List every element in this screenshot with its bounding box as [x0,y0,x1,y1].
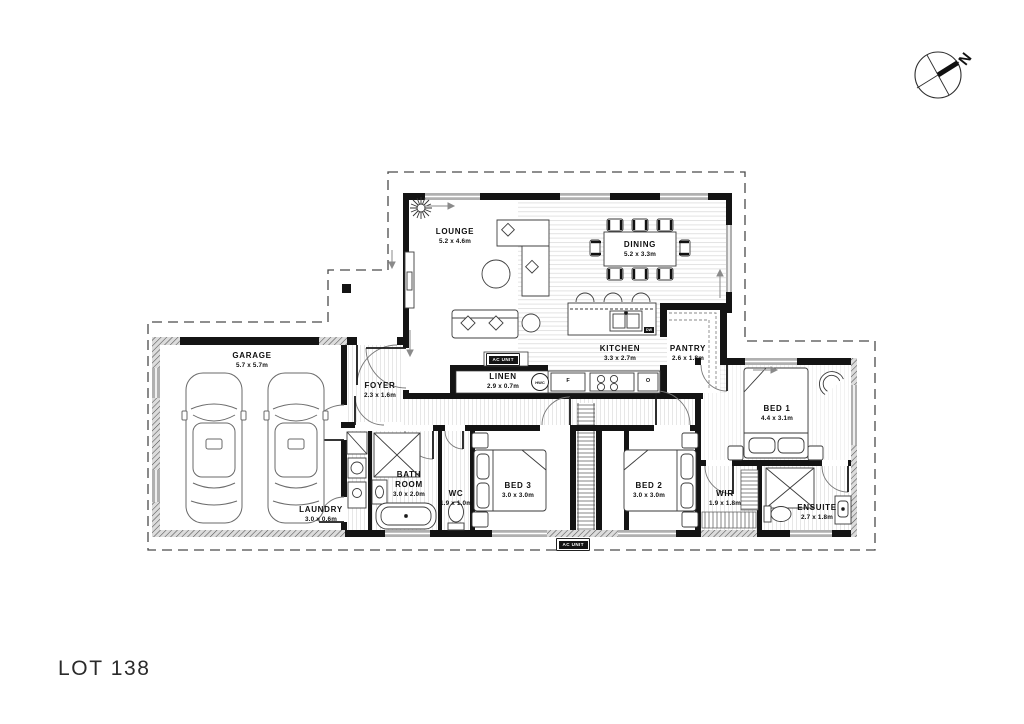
room-label-laundry: LAUNDRY 3.0 x 0.6m [299,505,343,523]
garage-cars [182,373,328,523]
plant-icon [410,197,432,219]
oven-label: O [644,378,652,384]
room-label-bed3: BED 3 3.0 x 3.0m [502,481,534,499]
bed2-furniture [624,433,698,527]
lot-title: LOT 138 [58,657,151,681]
bed3-furniture [472,433,546,527]
room-label-ensuite: ENSUITE 2.7 x 1.8m [797,503,837,521]
ac-unit-label-bottom: AC UNIT [556,538,590,551]
room-label-bathroom: BATH ROOM 3.0 x 2.0m [387,470,431,498]
compass: N [915,50,975,98]
hwc-label: HWC [531,380,549,385]
shaft-ladder [577,403,595,530]
ac-unit-label-top: AC UNIT [486,353,520,366]
fridge-label: F [564,378,572,384]
room-label-wc: WC 1.9 x 1.0m [440,489,472,507]
room-label-linen: LINEN 2.9 x 0.7m [487,372,519,390]
laundry-fittings [347,432,367,508]
room-label-lounge: LOUNGE 5.2 x 4.6m [436,227,474,245]
dishwasher-label: DW [644,327,654,333]
room-label-bed2: BED 2 3.0 x 3.0m [633,481,665,499]
room-label-kitchen: KITCHEN 3.3 x 2.7m [600,344,640,362]
room-label-dining: DINING 5.2 x 3.3m [624,240,656,258]
room-label-bed1: BED 1 4.4 x 3.1m [761,404,793,422]
lounge-furniture [405,220,549,338]
room-label-garage: GARAGE 5.7 x 5.7m [232,351,271,369]
room-label-foyer: FOYER 2.3 x 1.6m [364,381,396,399]
room-label-wir: WIR 1.9 x 1.8m [709,489,741,507]
compass-needle [938,63,958,76]
room-label-pantry: PANTRY 2.6 x 1.8m [670,344,706,362]
compass-north-label: N [955,50,975,69]
